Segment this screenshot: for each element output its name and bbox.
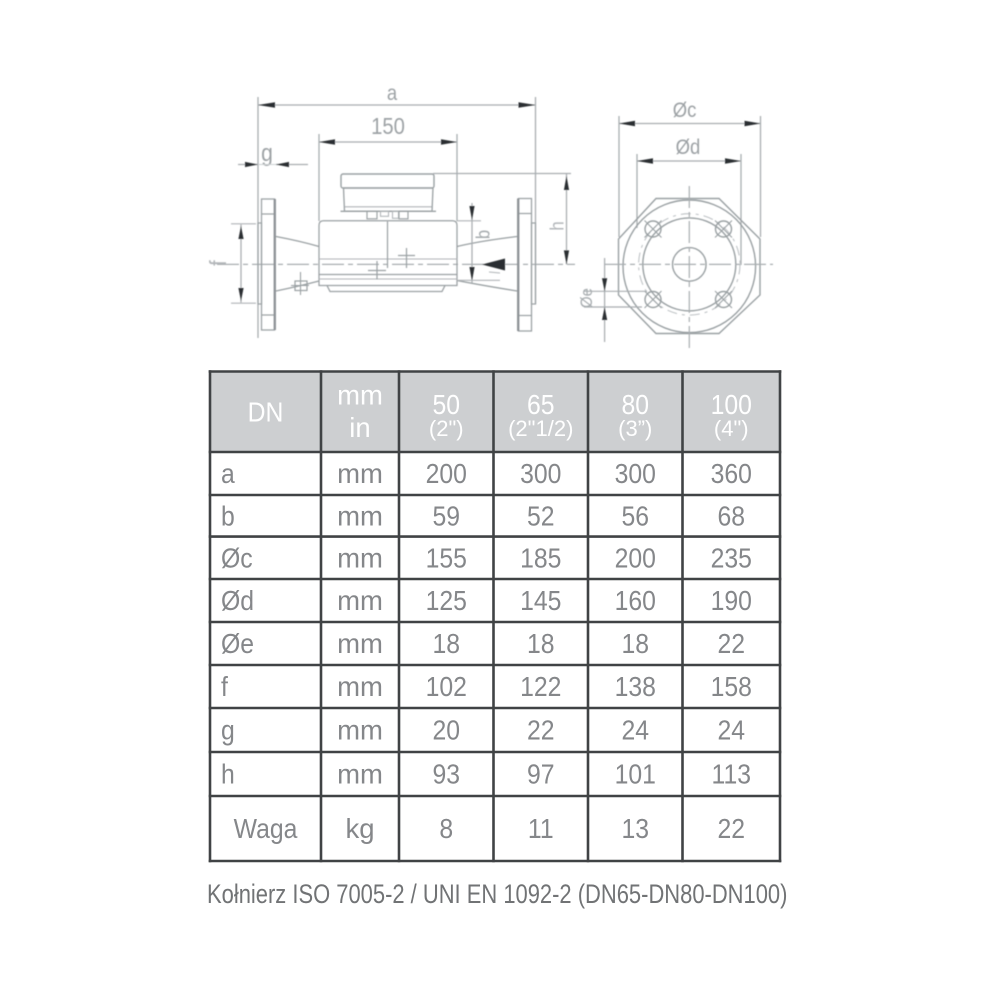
svg-text:97: 97 [527,758,555,790]
svg-text:18: 18 [527,628,555,660]
svg-text:Øe: Øe [221,628,254,660]
svg-text:360: 360 [711,458,752,490]
svg-text:(2"1/2): (2"1/2) [508,416,573,441]
svg-text:(4"): (4") [714,416,749,441]
svg-text:f: f [221,671,229,703]
svg-text:f: f [205,259,232,266]
svg-text:a: a [387,82,397,105]
svg-text:18: 18 [432,628,460,660]
svg-text:59: 59 [432,500,460,532]
svg-text:g: g [261,140,273,167]
svg-text:mm: mm [337,585,383,616]
svg-text:155: 155 [426,542,467,574]
svg-text:158: 158 [711,671,752,703]
svg-text:22: 22 [527,714,555,746]
svg-text:mm: mm [337,671,383,702]
svg-text:mm: mm [337,542,383,573]
svg-text:113: 113 [712,758,751,790]
svg-text:150: 150 [371,113,405,140]
svg-text:122: 122 [520,671,561,703]
svg-text:102: 102 [426,671,467,703]
svg-text:93: 93 [432,758,460,790]
svg-text:8: 8 [439,813,453,845]
svg-text:24: 24 [717,714,745,746]
svg-text:101: 101 [615,758,656,790]
svg-text:b: b [221,500,235,532]
svg-text:b: b [473,230,494,239]
svg-text:Ød: Ød [221,585,254,617]
svg-text:h: h [545,221,567,231]
svg-text:Ød: Ød [676,136,701,159]
svg-text:24: 24 [621,714,649,746]
svg-text:g: g [221,714,235,746]
svg-text:Øc: Øc [673,99,697,122]
svg-text:190: 190 [711,585,752,617]
svg-text:68: 68 [717,500,745,532]
svg-text:h: h [221,758,235,790]
svg-text:200: 200 [615,542,656,574]
svg-text:mm: mm [337,458,383,489]
svg-text:Waga: Waga [234,813,298,845]
svg-text:in: in [349,412,370,443]
svg-text:138: 138 [615,671,656,703]
svg-text:22: 22 [717,628,745,660]
svg-text:mm: mm [337,628,383,659]
svg-text:56: 56 [621,500,649,532]
svg-text:18: 18 [621,628,649,660]
svg-text:DN: DN [248,396,284,428]
svg-text:200: 200 [426,458,467,490]
svg-text:185: 185 [520,542,561,574]
svg-text:235: 235 [711,542,752,574]
svg-text:300: 300 [615,458,656,490]
svg-text:mm: mm [337,715,383,746]
svg-text:(3”): (3”) [618,416,652,441]
svg-text:kg: kg [345,813,374,844]
svg-text:22: 22 [717,813,745,845]
svg-text:a: a [221,458,235,490]
svg-text:Øc: Øc [221,542,253,574]
svg-text:(2"): (2") [429,416,464,441]
svg-text:Kołnierz ISO 7005-2 / UNI EN 1: Kołnierz ISO 7005-2 / UNI EN 1092-2 (DN6… [207,880,787,910]
svg-text:52: 52 [527,500,555,532]
svg-text:145: 145 [520,585,561,617]
svg-text:20: 20 [432,714,460,746]
svg-text:mm: mm [337,500,383,531]
svg-text:300: 300 [520,458,561,490]
svg-text:160: 160 [615,585,656,617]
svg-text:11: 11 [528,813,554,845]
svg-text:13: 13 [621,813,649,845]
svg-text:125: 125 [426,585,467,617]
svg-text:mm: mm [337,380,383,411]
svg-text:Øe: Øe [578,288,596,308]
svg-text:mm: mm [337,759,383,790]
